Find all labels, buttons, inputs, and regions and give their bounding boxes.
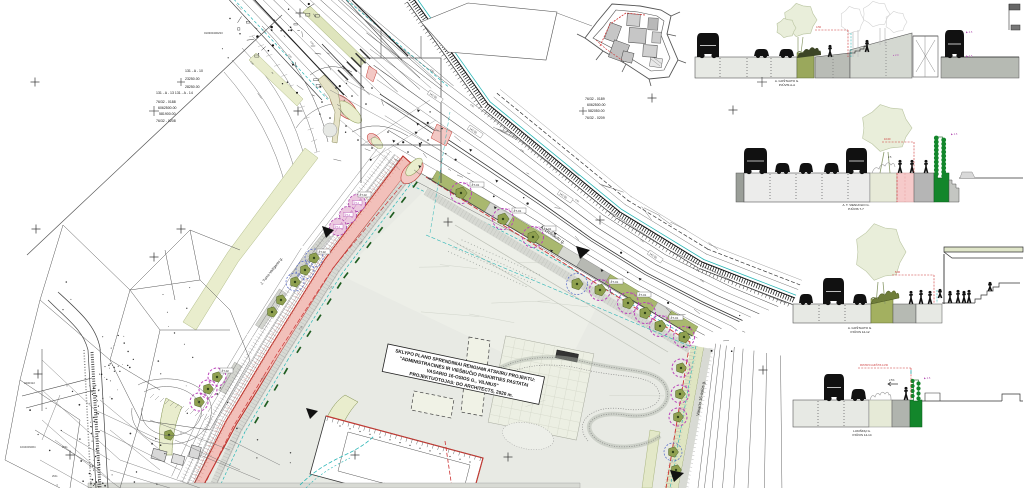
svg-text:ŽT-4: ŽT-4 (345, 214, 351, 217)
svg-text:ŽT-02: ŽT-02 (360, 192, 368, 197)
svg-text:76/32 - 0189: 76/32 - 0189 (585, 97, 605, 101)
svg-text:▶ 2.5: ▶ 2.5 (966, 54, 973, 58)
svg-text:ŽT-01: ŽT-01 (472, 182, 480, 187)
svg-text:ŽT-4: ŽT-4 (335, 226, 341, 229)
svg-text:2MG: 2MG (62, 446, 67, 449)
svg-text:▶ 2.5: ▶ 2.5 (924, 376, 931, 380)
svg-text:0400322: 0400322 (24, 381, 35, 385)
svg-text:131 - A - 10: 131 - A - 10 (185, 69, 203, 73)
svg-text:76/32 - 0208: 76/32 - 0208 (156, 119, 176, 123)
svg-text:▶ 2.5: ▶ 2.5 (966, 30, 973, 34)
svg-text:K-01: K-01 (683, 358, 689, 362)
svg-text:23250.00: 23250.00 (185, 77, 200, 81)
svg-text:010300400233: 010300400233 (204, 31, 223, 35)
svg-text:2MG: 2MG (52, 475, 57, 478)
svg-text:ŽT-02: ŽT-02 (222, 368, 230, 373)
svg-text:6062500.00: 6062500.00 (587, 103, 606, 107)
svg-text:PASTATO AUKŠTIS 14.50: PASTATO AUKŠTIS 14.50 (860, 364, 889, 367)
svg-text:4.50: 4.50 (816, 25, 822, 29)
svg-text:K-01: K-01 (602, 279, 608, 283)
svg-text:10.00: 10.00 (884, 137, 891, 141)
svg-text:581900.00: 581900.00 (159, 112, 176, 116)
svg-text:8.00: 8.00 (895, 270, 901, 274)
svg-text:ŽT-4: ŽT-4 (354, 202, 360, 205)
svg-text:76/32 - 0188: 76/32 - 0188 (156, 100, 176, 104)
svg-text:6062500.00: 6062500.00 (158, 106, 177, 110)
svg-text:K-01: K-01 (463, 182, 469, 186)
svg-text:K-01: K-01 (210, 379, 216, 383)
svg-text:PJŪVIS A-A: PJŪVIS A-A (779, 83, 795, 87)
svg-text:ŽT-01: ŽT-01 (514, 208, 522, 213)
svg-text:▸ 2.0: ▸ 2.0 (893, 53, 899, 57)
svg-text:▶ 2.5: ▶ 2.5 (951, 132, 958, 136)
svg-text:K-01: K-01 (682, 384, 688, 388)
svg-text:2.5%: 2.5% (889, 379, 895, 382)
svg-text:K-01: K-01 (662, 315, 668, 319)
svg-text:ŽT-02: ŽT-02 (319, 249, 327, 254)
svg-text:PJŪVIS 12-12: PJŪVIS 12-12 (850, 330, 869, 334)
svg-text:582050.00: 582050.00 (588, 109, 605, 113)
svg-text:PJŪVIS 7-7: PJŪVIS 7-7 (848, 207, 864, 211)
svg-text:28250.00: 28250.00 (185, 85, 200, 89)
svg-text:76/32 - 0209: 76/32 - 0209 (585, 116, 605, 120)
svg-text:K-01: K-01 (201, 392, 207, 396)
svg-text:ŽT-01: ŽT-01 (639, 292, 647, 297)
svg-text:131 - A - 13 131 - A - 14: 131 - A - 13 131 - A - 14 (156, 91, 193, 95)
svg-text:K-01: K-01 (680, 407, 686, 411)
svg-text:K-01: K-01 (630, 292, 636, 296)
svg-text:ŽT-01: ŽT-01 (671, 315, 679, 320)
svg-text:K-01: K-01 (505, 208, 511, 212)
svg-text:PJŪVIS 14-14: PJŪVIS 14-14 (852, 433, 871, 437)
svg-text:ŽT-01: ŽT-01 (611, 279, 619, 284)
svg-text:1004009064: 1004009064 (20, 445, 36, 449)
svg-text:K-01: K-01 (647, 302, 653, 306)
